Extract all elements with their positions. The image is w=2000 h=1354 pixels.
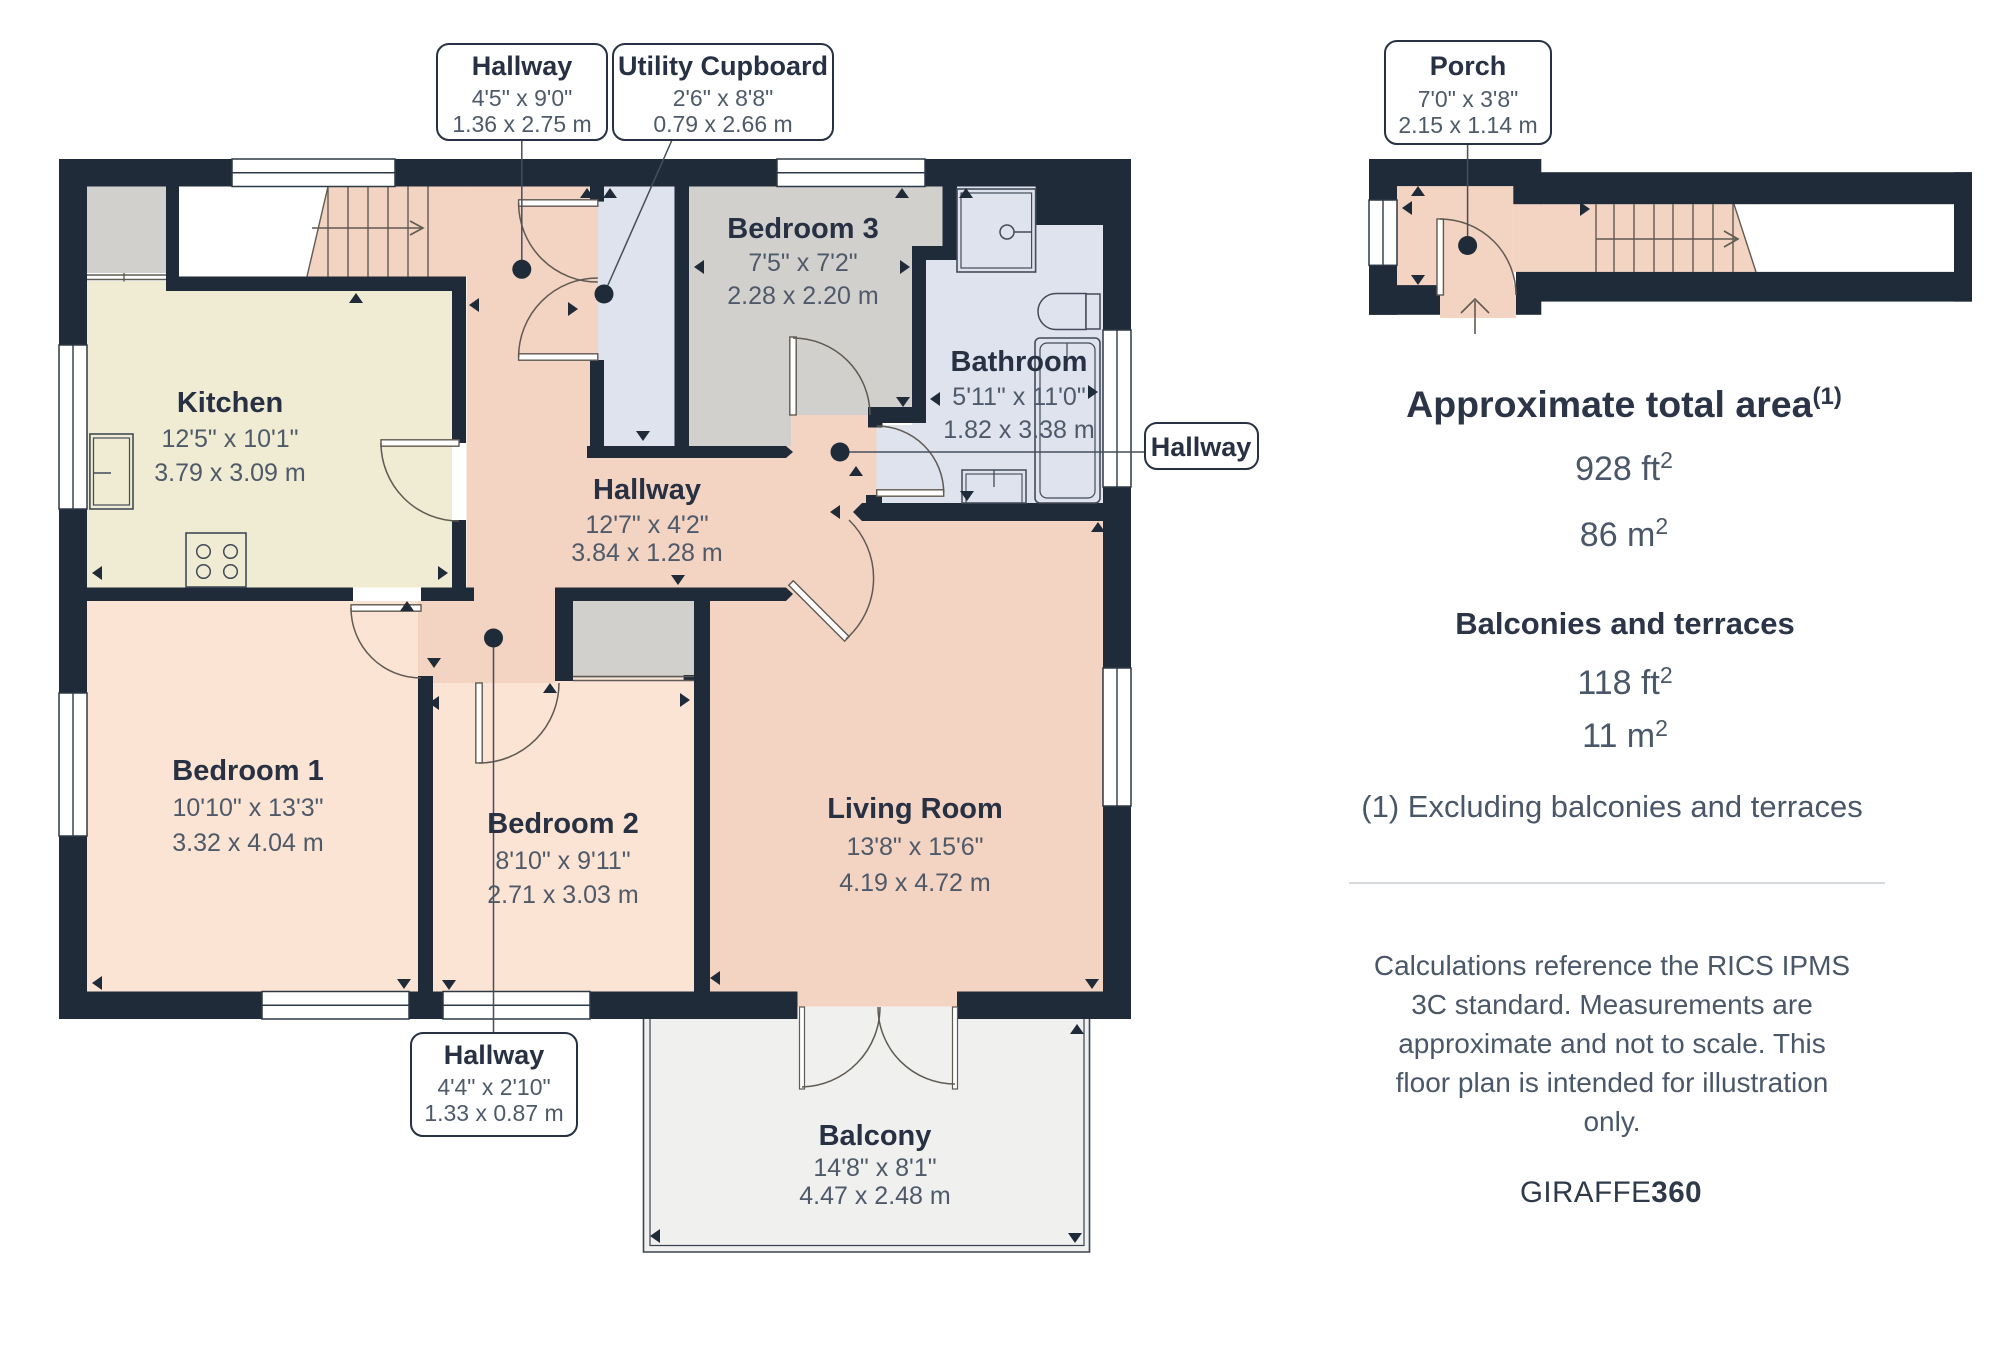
- svg-text:Approximate total area(1): Approximate total area(1): [1406, 383, 1842, 425]
- svg-text:14'8" x 8'1": 14'8" x 8'1": [813, 1154, 936, 1182]
- svg-text:3.84 x 1.28 m: 3.84 x 1.28 m: [571, 539, 722, 567]
- svg-text:Balcony: Balcony: [819, 1120, 932, 1152]
- svg-text:8'10" x 9'11": 8'10" x 9'11": [495, 847, 630, 875]
- svg-text:3.32 x 4.04 m: 3.32 x 4.04 m: [172, 829, 323, 857]
- svg-text:0.79 x 2.66 m: 0.79 x 2.66 m: [653, 111, 792, 137]
- svg-text:7'5" x 7'2": 7'5" x 7'2": [748, 249, 857, 277]
- svg-text:Bedroom 1: Bedroom 1: [172, 755, 323, 787]
- svg-text:(1) Excluding balconies and te: (1) Excluding balconies and terraces: [1361, 789, 1862, 824]
- svg-text:Utility Cupboard: Utility Cupboard: [618, 51, 828, 81]
- svg-text:Hallway: Hallway: [1151, 432, 1252, 462]
- svg-text:13'8" x 15'6": 13'8" x 15'6": [846, 833, 983, 861]
- svg-text:only.: only.: [1583, 1106, 1640, 1137]
- svg-text:118 ft2: 118 ft2: [1577, 662, 1672, 702]
- svg-text:7'0" x 3'8": 7'0" x 3'8": [1418, 86, 1519, 112]
- svg-text:GIRAFFE360: GIRAFFE360: [1520, 1176, 1702, 1209]
- svg-text:2.15 x 1.14 m: 2.15 x 1.14 m: [1398, 112, 1537, 138]
- svg-text:4'5" x 9'0": 4'5" x 9'0": [472, 85, 573, 111]
- svg-text:Calculations reference the RIC: Calculations reference the RICS IPMS: [1374, 950, 1850, 981]
- svg-text:12'5" x 10'1": 12'5" x 10'1": [161, 425, 298, 453]
- svg-text:Hallway: Hallway: [593, 474, 701, 506]
- svg-text:Hallway: Hallway: [444, 1040, 545, 1070]
- svg-text:Hallway: Hallway: [472, 51, 573, 81]
- svg-text:Bedroom 3: Bedroom 3: [727, 213, 878, 245]
- svg-text:1.82 x 3.38 m: 1.82 x 3.38 m: [943, 416, 1094, 444]
- svg-text:11 m2: 11 m2: [1582, 715, 1668, 755]
- svg-text:86 m2: 86 m2: [1580, 513, 1668, 554]
- svg-text:Kitchen: Kitchen: [177, 387, 283, 419]
- svg-text:10'10" x 13'3": 10'10" x 13'3": [172, 794, 323, 822]
- svg-text:4.47 x 2.48 m: 4.47 x 2.48 m: [799, 1182, 950, 1210]
- svg-text:2.71 x 3.03 m: 2.71 x 3.03 m: [487, 881, 638, 909]
- svg-text:floor plan is intended for ill: floor plan is intended for illustration: [1396, 1067, 1829, 1098]
- svg-text:2.28 x 2.20 m: 2.28 x 2.20 m: [727, 282, 878, 310]
- svg-text:Porch: Porch: [1430, 51, 1507, 81]
- svg-text:3.79 x 3.09 m: 3.79 x 3.09 m: [154, 459, 305, 487]
- svg-text:Bathroom: Bathroom: [951, 346, 1088, 378]
- svg-text:Living Room: Living Room: [827, 793, 1003, 825]
- svg-text:Balconies and terraces: Balconies and terraces: [1455, 606, 1794, 641]
- svg-text:4.19 x 4.72 m: 4.19 x 4.72 m: [839, 869, 990, 897]
- svg-text:3C standard. Measurements are: 3C standard. Measurements are: [1411, 989, 1813, 1020]
- svg-text:Bedroom 2: Bedroom 2: [487, 808, 638, 840]
- svg-text:2'6" x 8'8": 2'6" x 8'8": [673, 85, 774, 111]
- svg-text:4'4" x 2'10": 4'4" x 2'10": [437, 1074, 550, 1100]
- svg-text:12'7" x 4'2": 12'7" x 4'2": [585, 511, 708, 539]
- svg-text:928 ft2: 928 ft2: [1575, 447, 1673, 488]
- svg-text:1.33 x 0.87 m: 1.33 x 0.87 m: [424, 1100, 563, 1126]
- svg-text:1.36 x 2.75 m: 1.36 x 2.75 m: [452, 111, 591, 137]
- svg-text:approximate and not to scale.: approximate and not to scale. This: [1398, 1028, 1826, 1059]
- svg-text:5'11" x 11'0": 5'11" x 11'0": [952, 383, 1085, 411]
